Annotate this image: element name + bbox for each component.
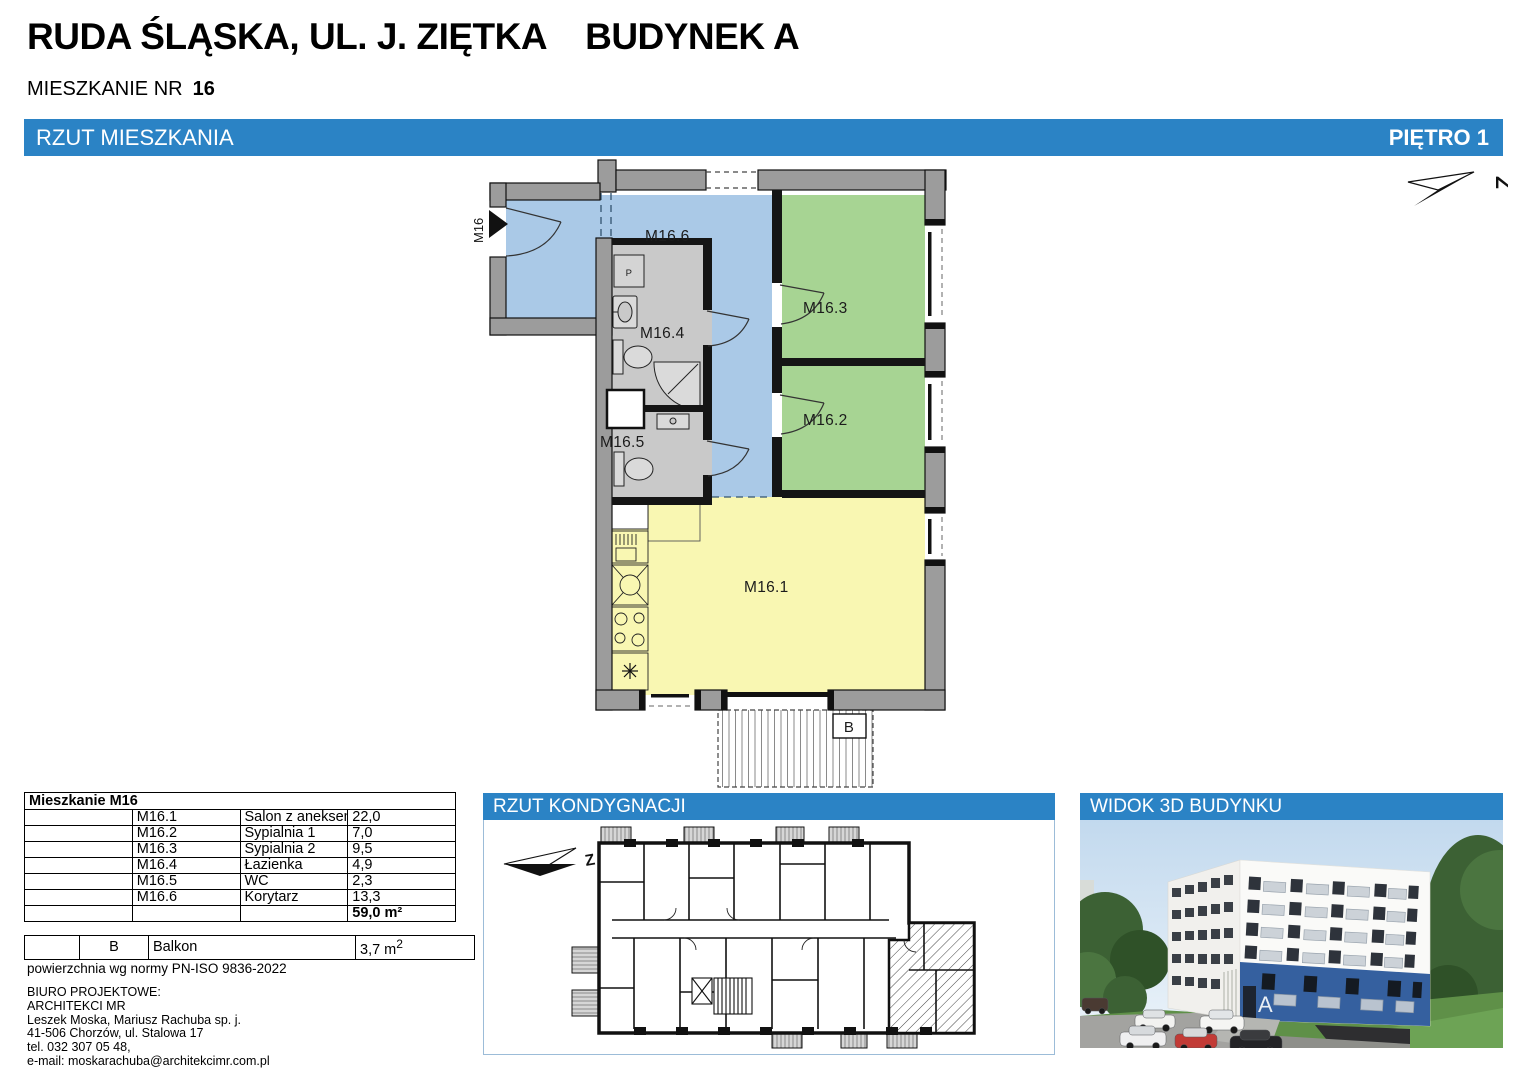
page-title: RUDA ŚLĄSKA, UL. J. ZIĘTKABUDYNEK A [27, 16, 799, 58]
table-row: M16.1Salon z aneksem kuchennym22,0 [25, 810, 456, 826]
washbasin-icon [613, 296, 637, 328]
total-area: 59,0 m² [348, 906, 456, 922]
entrance-recess [1243, 986, 1256, 1020]
balcony-area: 3,7 m2 [356, 936, 475, 960]
section-bar-plan: RZUT MIESZKANIA PIĘTRO 1 [24, 119, 1503, 156]
storey-plan-title: RZUT KONDYGNACJI [483, 793, 1055, 820]
table-row: M16.3Sypialnia 29,5 [25, 842, 456, 858]
label-m16-4: M16.4 [640, 325, 685, 342]
table-row: M16.2Sypialnia 17,0 [25, 826, 456, 842]
compass-letter: Z [584, 851, 597, 869]
label-m16-3: M16.3 [803, 300, 848, 317]
apartment-number: 16 [193, 78, 215, 100]
label-m16-1: M16.1 [744, 579, 789, 596]
north-arrow-icon [1408, 172, 1474, 206]
highlighted-apartment [889, 923, 974, 1033]
table-row: M16.6Korytarz13,3 [25, 890, 456, 906]
stove-icon [612, 607, 648, 651]
balcony-code: B [80, 936, 149, 960]
fridge-icon [612, 501, 648, 529]
building-3d-render: A [1080, 820, 1503, 1048]
entrance-arrow-icon [489, 210, 508, 238]
label-balcony: B [844, 719, 854, 736]
building: A [1168, 860, 1430, 1026]
dishrack-icon [612, 531, 648, 563]
wc-washbasin-icon [657, 414, 689, 429]
label-m16-2: M16.2 [803, 412, 848, 429]
balcony-table: B Balkon 3,7 m2 [24, 935, 475, 960]
storey-plan-panel: RZUT KONDYGNACJI [483, 793, 1055, 1055]
compass-main: Z [1398, 164, 1508, 222]
storey-plan-drawing: Z [484, 820, 1054, 1053]
top-wall-opening [706, 172, 758, 188]
room-bedroom-m16-2 [782, 365, 925, 495]
design-office-info: BIURO PROJEKTOWE: ARCHITEKCI MR Leszek M… [27, 986, 270, 1069]
floor-badge: PIĘTRO 1 [1389, 125, 1503, 151]
area-table-title: Mieszkanie M16 [25, 793, 456, 810]
area-tables: Mieszkanie M16 M16.1Salon z aneksem kuch… [24, 792, 456, 960]
view3d-panel: WIDOK 3D BUDYNKU [1080, 793, 1503, 1048]
west-arrow-icon [504, 848, 576, 876]
page-title-address: RUDA ŚLĄSKA, UL. J. ZIĘTKA [27, 16, 547, 57]
compass-storey: Z [504, 848, 597, 876]
balcony-name: Balkon [149, 936, 356, 960]
room-bedroom-m16-3 [782, 195, 925, 365]
building-letter: A [1258, 992, 1273, 1017]
label-m16-5: M16.5 [600, 434, 645, 451]
entrance-marker: M16 [471, 210, 508, 243]
table-row: B Balkon 3,7 m2 [25, 936, 475, 960]
table-total-row: 59,0 m² [25, 906, 456, 922]
compass-letter: Z [1491, 176, 1508, 189]
table-row: M16.4Łazienka4,9 [25, 858, 456, 874]
area-table: Mieszkanie M16 M16.1Salon z aneksem kuch… [24, 792, 456, 922]
boiler-icon [612, 653, 648, 690]
section-bar-plan-title: RZUT MIESZKANIA [24, 125, 234, 151]
entrance-label: M16 [471, 218, 486, 243]
sink-icon [612, 565, 648, 605]
page: RUDA ŚLĄSKA, UL. J. ZIĘTKABUDYNEK A MIES… [0, 0, 1527, 1080]
norm-note: powierzchnia wg normy PN-ISO 9836-2022 [27, 961, 287, 976]
view3d-title: WIDOK 3D BUDYNKU [1080, 793, 1503, 820]
apartment-subtitle: MIESZKANIE NR16 [27, 78, 215, 101]
apartment-label: MIESZKANIE NR [27, 78, 183, 100]
page-title-building: BUDYNEK A [585, 16, 799, 57]
apartment-floor-plan: M16 M16.6 M16.3 M16.2 M16.4 M16.5 M16.1 … [466, 158, 976, 810]
label-m16-6: M16.6 [645, 228, 690, 245]
label-washer: P [626, 268, 633, 279]
table-row: M16.5WC2,3 [25, 874, 456, 890]
shaft-box [607, 390, 644, 428]
